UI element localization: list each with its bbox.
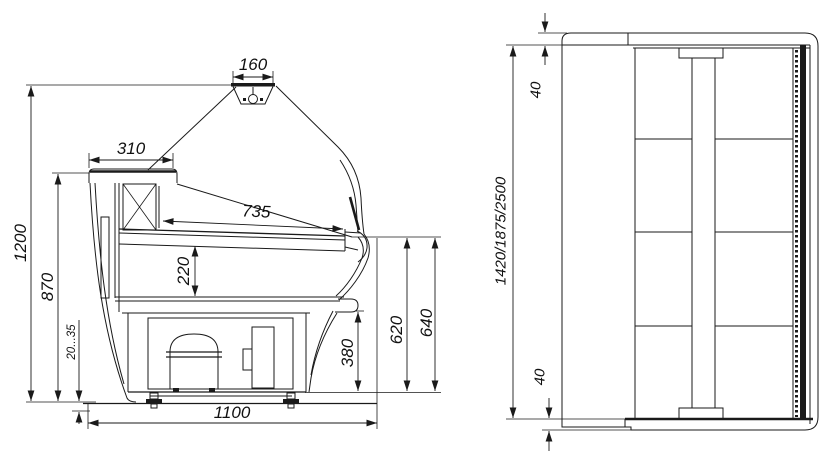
front-glass-outer xyxy=(276,86,364,234)
drawing-canvas: 160 310 735 220 1200 870 xyxy=(0,0,830,464)
plan-shelf-dividers xyxy=(635,139,793,326)
front-glass-edge xyxy=(350,197,359,230)
dim-canopy-depth-label: 310 xyxy=(117,139,146,158)
compressor-body xyxy=(170,334,218,389)
plan-glass-strip xyxy=(793,45,810,424)
dim-counter-height: 870 xyxy=(38,173,89,401)
dim-overall-height-label: 1200 xyxy=(11,224,30,262)
display-deck xyxy=(119,229,367,262)
dim-well-depth: 220 xyxy=(174,246,195,296)
dim-line xyxy=(163,221,343,229)
back-panel xyxy=(101,217,109,298)
back-wall xyxy=(90,183,136,402)
insulation-block xyxy=(123,184,159,230)
dim-canopy-depth: 310 xyxy=(89,139,173,168)
dim-nose-height-label: 640 xyxy=(417,308,436,337)
column-shaft xyxy=(692,58,715,408)
dim-bottom-end: 40 xyxy=(531,368,631,451)
dim-length-variants: 1420/1875/2500 xyxy=(492,45,625,419)
dim-leg-adjustment-label: 20...35 xyxy=(66,324,78,361)
side-view: 160 310 735 220 1200 870 xyxy=(11,55,441,429)
dim-lamp-width-label: 160 xyxy=(239,55,268,74)
lamp-end-right xyxy=(260,98,263,101)
compressor-foot-left xyxy=(173,388,179,392)
plan-view: 1420/1875/2500 40 40 xyxy=(492,13,818,451)
dim-well-depth-label: 220 xyxy=(174,256,193,286)
dim-top-end: 40 xyxy=(527,13,567,98)
dim-bumper-height: 380 xyxy=(338,311,364,391)
left-leg-pad xyxy=(146,399,162,403)
front-panel xyxy=(309,234,369,392)
dim-bottom-end-label: 40 xyxy=(531,368,548,385)
right-leg-pad xyxy=(283,399,299,403)
dim-overall-height: 1200 xyxy=(11,85,233,402)
compressor xyxy=(166,334,222,392)
column-head xyxy=(679,48,723,58)
glass-band xyxy=(800,45,806,419)
dim-overall-depth-label: 1100 xyxy=(214,403,251,422)
dim-front-panel-height-label: 620 xyxy=(387,315,406,344)
plan-column xyxy=(679,48,723,419)
technical-drawing: 160 310 735 220 1200 870 xyxy=(0,0,830,464)
lamp-end-left xyxy=(243,98,246,101)
machine-compartment xyxy=(122,313,310,396)
dim-leg-adjustment: 20...35 xyxy=(66,320,90,424)
lamp-housing-top xyxy=(231,83,275,87)
right-leg-bolt xyxy=(288,404,294,408)
compressor-foot-right xyxy=(209,388,215,392)
dim-overall-depth: 1100 xyxy=(88,238,377,429)
front-outer xyxy=(309,234,369,392)
dim-counter-height-label: 870 xyxy=(38,272,57,301)
dim-deck-depth: 735 xyxy=(163,201,343,229)
lamp-tube-icon xyxy=(249,95,258,104)
electrical-box xyxy=(252,327,274,388)
dim-length-variants-label: 1420/1875/2500 xyxy=(492,176,509,285)
deck-top xyxy=(119,229,345,236)
left-leg-bolt xyxy=(151,404,157,408)
column-foot xyxy=(679,408,723,419)
canopy-support xyxy=(148,87,236,170)
electrical-box-tab xyxy=(243,349,252,370)
worktop xyxy=(89,169,352,237)
dim-bumper-height-label: 380 xyxy=(338,338,357,367)
dim-lamp-width: 160 xyxy=(233,55,273,84)
deck-bottom xyxy=(119,244,345,251)
deck-mid xyxy=(119,233,345,240)
dim-top-end-label: 40 xyxy=(527,81,544,98)
dim-nose-height: 640 xyxy=(417,238,436,391)
canopy-lamp xyxy=(231,83,275,104)
dim-deck-depth-label: 735 xyxy=(242,201,272,221)
